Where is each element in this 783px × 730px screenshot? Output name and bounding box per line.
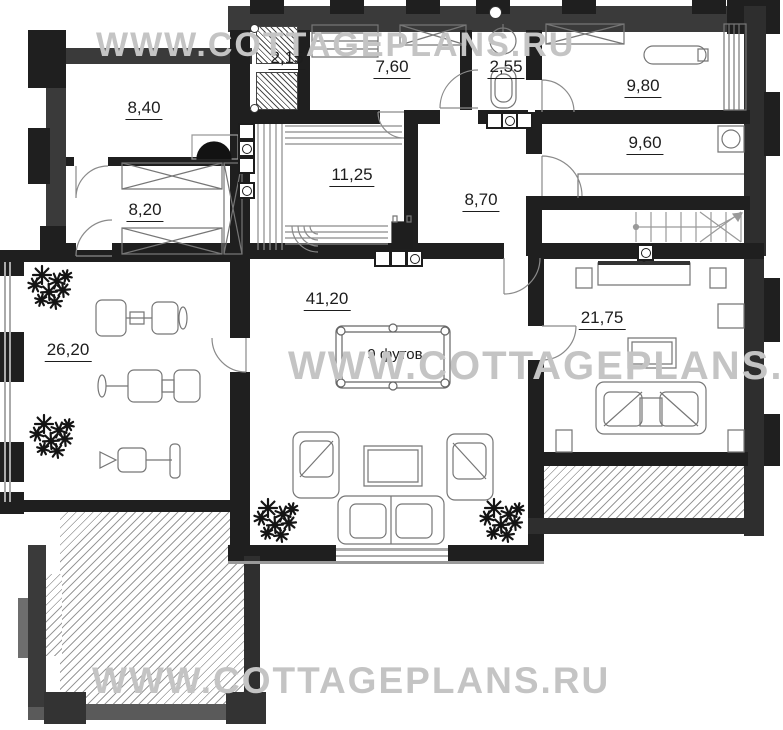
slatted-closet bbox=[724, 24, 746, 110]
room-label-11-25: 11,25 bbox=[329, 165, 374, 187]
sauna-benches bbox=[258, 124, 402, 252]
plant bbox=[480, 499, 523, 542]
watermark-bottom: WWW.COTTAGEPLANS.RU bbox=[92, 660, 610, 702]
room-label-9-60: 9,60 bbox=[626, 133, 663, 155]
sofa bbox=[338, 496, 444, 544]
plant bbox=[28, 266, 71, 309]
watermark-top: WWW.COTTAGEPLANS.RU bbox=[96, 26, 575, 65]
room-label-26-20: 26,20 bbox=[45, 340, 92, 362]
vent-marker bbox=[637, 244, 654, 261]
vent-marker bbox=[238, 140, 255, 157]
vent-marker bbox=[390, 250, 407, 267]
watermark-middle: WWW.COTTAGEPLANS.RU bbox=[288, 344, 783, 389]
vent-marker bbox=[238, 157, 255, 174]
room-label-8-70: 8,70 bbox=[462, 190, 499, 212]
coffee-table bbox=[364, 446, 422, 486]
room-label-9-80: 9,80 bbox=[624, 76, 661, 98]
washing-machine bbox=[718, 126, 744, 152]
gym-machine bbox=[96, 300, 187, 336]
vent-marker bbox=[406, 250, 423, 267]
armchair bbox=[447, 434, 493, 500]
staircase bbox=[634, 212, 743, 242]
plant bbox=[30, 415, 73, 458]
cinema-sofa bbox=[596, 382, 706, 434]
vent-marker bbox=[374, 250, 391, 267]
shaft-marker bbox=[250, 104, 259, 113]
sauna-heater bbox=[192, 135, 238, 159]
gym-bike bbox=[100, 444, 180, 478]
vent-marker bbox=[238, 123, 255, 140]
room-label-41-20: 41,20 bbox=[304, 289, 351, 311]
washstand-marker bbox=[516, 112, 533, 129]
vent-marker bbox=[238, 182, 255, 199]
roof-vent bbox=[489, 6, 502, 19]
plant bbox=[254, 499, 297, 542]
room-label-8-20: 8,20 bbox=[126, 200, 163, 222]
sauna-stove bbox=[392, 216, 412, 248]
floor-plan: 2,15 7,60 2,55 9,80 8,40 9,60 11,25 8,70… bbox=[0, 0, 783, 730]
gym-machine bbox=[98, 370, 200, 402]
counter bbox=[578, 174, 744, 198]
armchair bbox=[293, 432, 339, 498]
room-label-21-75: 21,75 bbox=[579, 308, 626, 330]
room-label-8-40: 8,40 bbox=[125, 98, 162, 120]
massage-lounger bbox=[644, 46, 708, 64]
